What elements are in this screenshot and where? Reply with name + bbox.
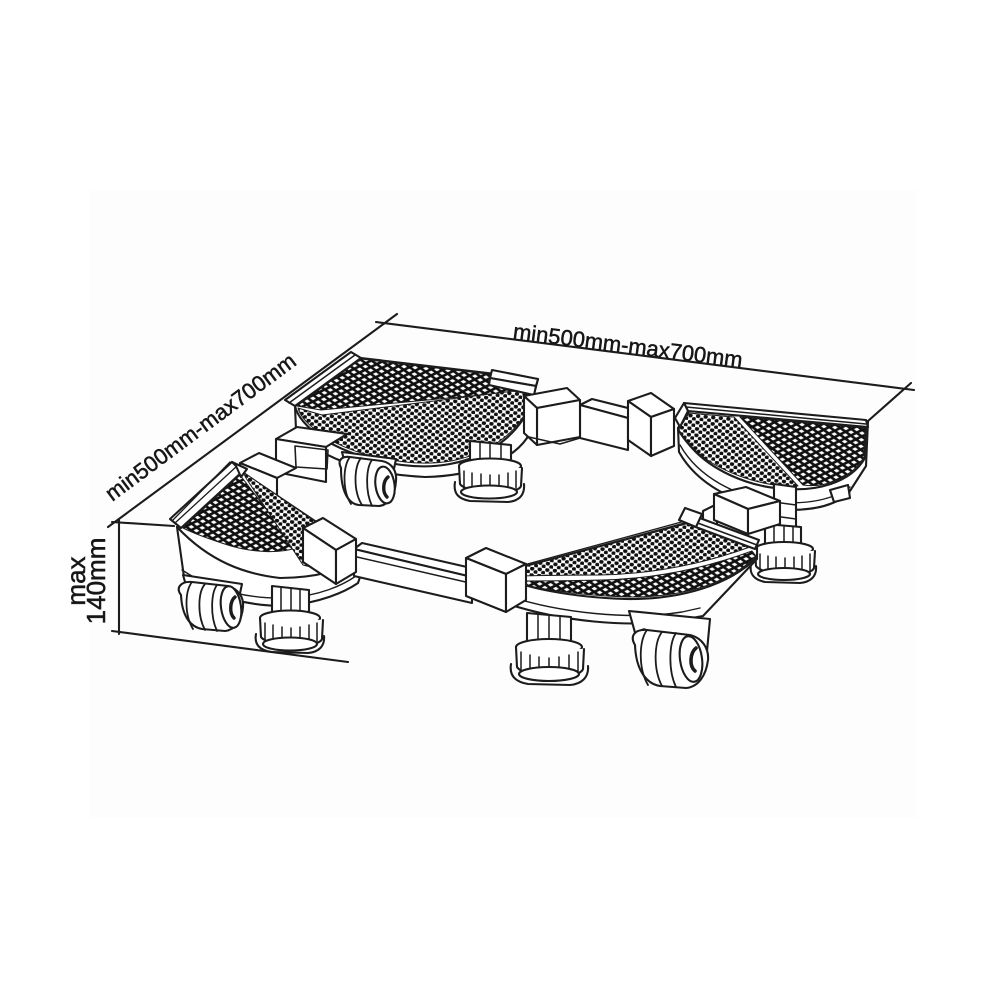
svg-text:140mm: 140mm (81, 538, 111, 625)
